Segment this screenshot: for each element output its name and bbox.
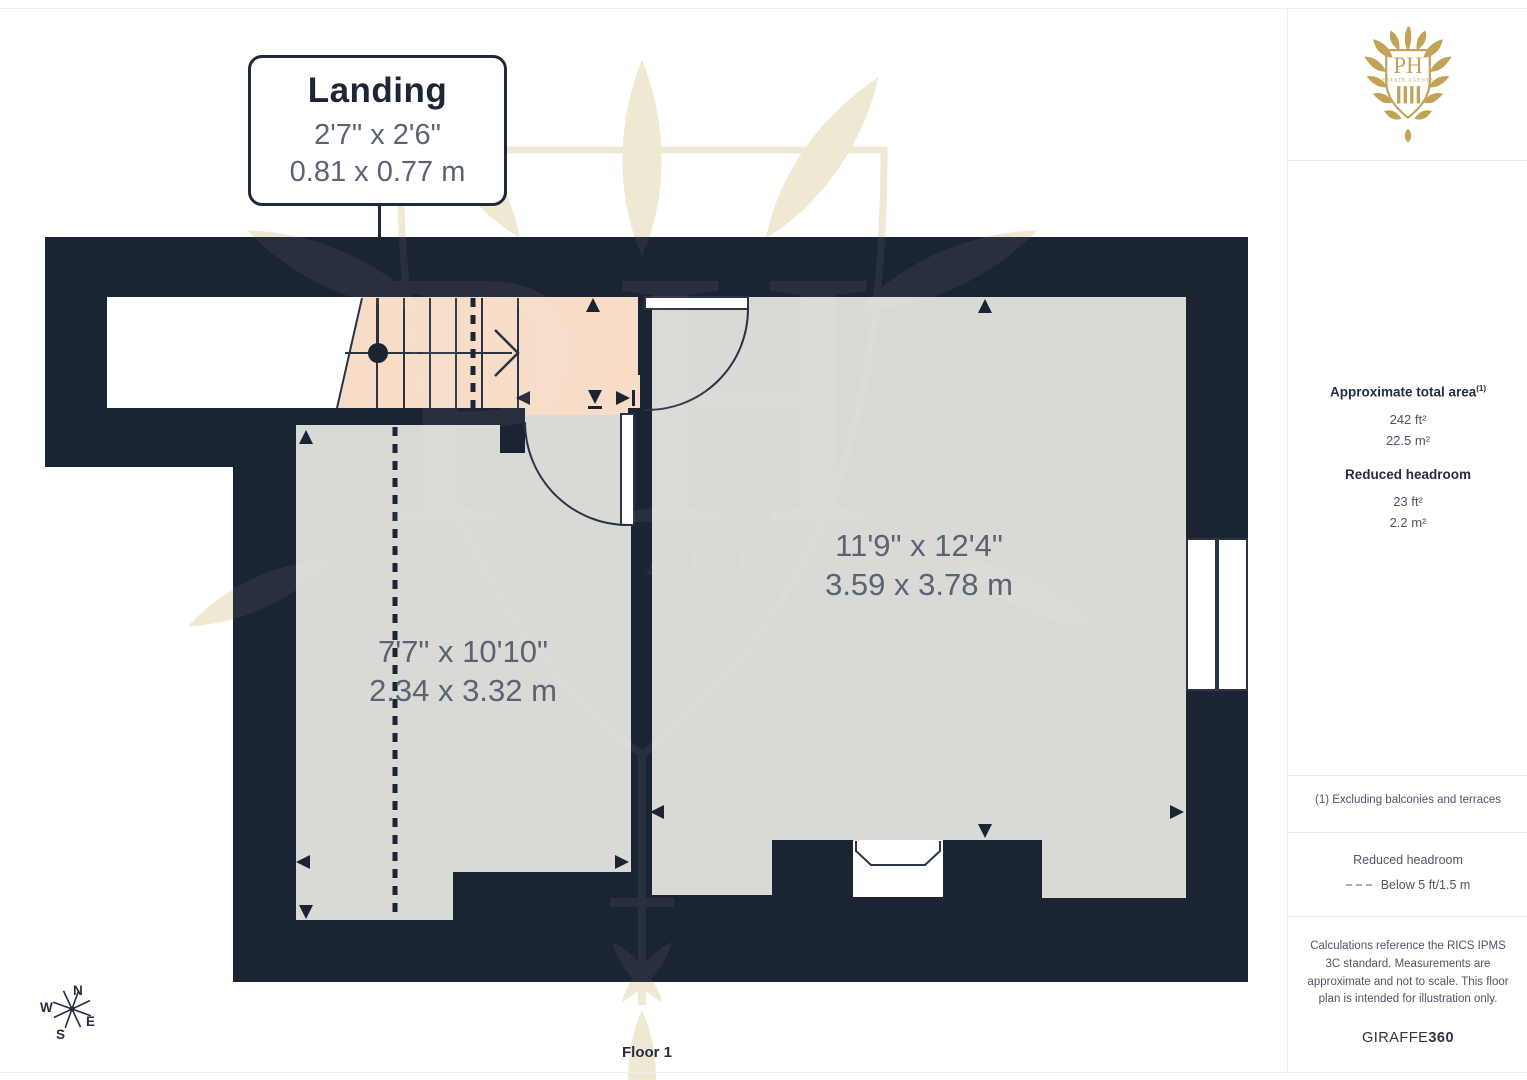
- compass-rose: N W E S: [40, 983, 95, 1042]
- logo-monogram: PH: [1393, 53, 1422, 78]
- room-left-imperial: 7'7" x 10'10": [313, 632, 613, 671]
- legend-dash-sample: [1346, 884, 1372, 886]
- area-footnote-marker: (1): [1476, 384, 1486, 393]
- compass-e: E: [86, 1014, 95, 1029]
- legend-item: Below 5 ft/1.5 m: [1381, 878, 1471, 892]
- eaves-void: [107, 297, 362, 408]
- compass-n: N: [73, 983, 83, 998]
- headroom-legend: Reduced headroom Below 5 ft/1.5 m: [1288, 853, 1527, 892]
- area-imperial: 242 ft²: [1288, 409, 1527, 430]
- disclaimer-text: Calculations reference the RICS IPMS 3C …: [1306, 938, 1510, 1009]
- landing-callout-title: Landing: [308, 71, 448, 111]
- area-metric: 22.5 m²: [1288, 430, 1527, 451]
- area-heading: Approximate total area(1): [1288, 384, 1527, 400]
- floor-label: Floor 1: [547, 1044, 747, 1061]
- floorplan-canvas: PH ESTATE AGENTS: [0, 0, 1287, 1080]
- room-right-metric: 3.59 x 3.78 m: [769, 565, 1069, 604]
- landing-callout: Landing 2'7" x 2'6" 0.81 x 0.77 m: [248, 55, 507, 206]
- area-summary: Approximate total area(1) 242 ft² 22.5 m…: [1288, 384, 1527, 533]
- callout-leader-line: [378, 203, 381, 239]
- reduced-headroom-heading: Reduced headroom: [1288, 467, 1527, 482]
- dormer-niche: [853, 840, 943, 897]
- area-footnote: (1) Excluding balconies and terraces: [1288, 794, 1527, 806]
- window-right: [1186, 538, 1248, 691]
- reduced-headroom-metric: 2.2 m²: [1288, 512, 1527, 533]
- logo-subtitle: ESTATE AGENTS: [1382, 79, 1434, 84]
- info-sidebar: PH ESTATE AGENTS Approximate total area(…: [1287, 8, 1527, 1072]
- landing-callout-imperial: 2'7" x 2'6": [314, 117, 441, 154]
- room-right-imperial: 11'9" x 12'4": [769, 526, 1069, 565]
- brand-mark: GIRAFFE360: [1288, 1030, 1527, 1046]
- room-right-label: 11'9" x 12'4" 3.59 x 3.78 m: [769, 526, 1069, 604]
- agency-logo: PH ESTATE AGENTS: [1353, 24, 1463, 146]
- compass-s: S: [56, 1027, 65, 1042]
- brand-name: GIRAFFE: [1362, 1030, 1428, 1046]
- compass-w: W: [40, 1000, 53, 1015]
- room-left-metric: 2.34 x 3.32 m: [313, 671, 613, 710]
- brand-suffix: 360: [1428, 1030, 1454, 1046]
- room-left-label: 7'7" x 10'10" 2.34 x 3.32 m: [313, 632, 613, 710]
- legend-heading: Reduced headroom: [1288, 853, 1527, 867]
- reduced-headroom-imperial: 23 ft²: [1288, 491, 1527, 512]
- landing-callout-metric: 0.81 x 0.77 m: [290, 154, 466, 191]
- floorplan-page: PH ESTATE AGENTS: [0, 0, 1527, 1080]
